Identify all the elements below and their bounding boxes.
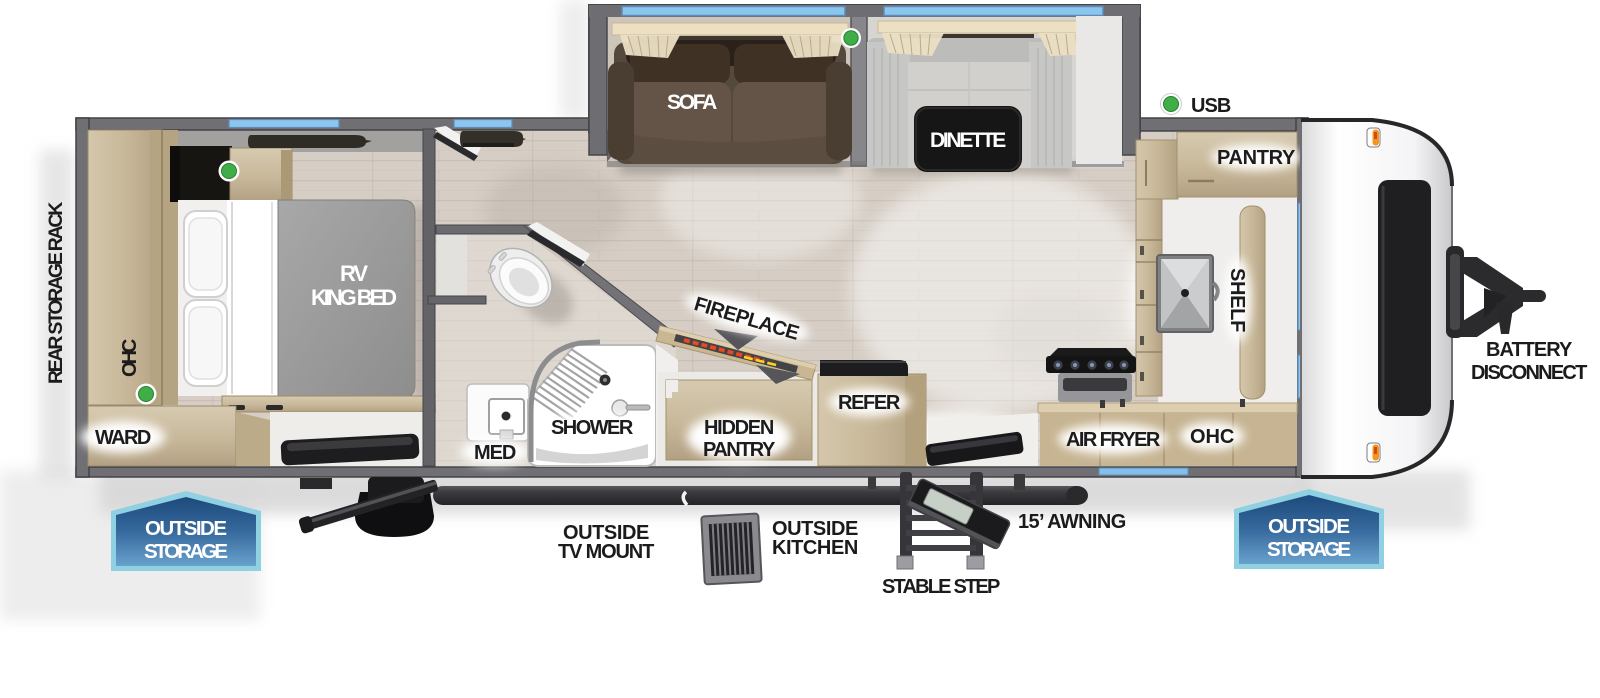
svg-text:RV: RV: [340, 261, 368, 286]
svg-text:PANTRY: PANTRY: [1217, 147, 1296, 169]
svg-text:OUTSIDE: OUTSIDE: [1268, 515, 1350, 538]
svg-text:REFER: REFER: [838, 392, 901, 414]
svg-text:SHELF: SHELF: [1226, 268, 1248, 332]
svg-text:PANTRY: PANTRY: [703, 439, 776, 461]
svg-text:DINETTE: DINETTE: [930, 129, 1006, 152]
svg-text:BATTERY: BATTERY: [1486, 339, 1573, 361]
svg-text:HIDDEN: HIDDEN: [704, 417, 774, 439]
svg-text:KITCHEN: KITCHEN: [772, 537, 858, 559]
svg-text:REAR STORAGE RACK: REAR STORAGE RACK: [45, 202, 67, 384]
svg-text:DISCONNECT: DISCONNECT: [1471, 362, 1587, 384]
svg-text:OUTSIDE: OUTSIDE: [145, 517, 227, 540]
svg-text:USB: USB: [1191, 95, 1231, 117]
svg-text:OHC: OHC: [119, 339, 141, 377]
svg-text:TV MOUNT: TV MOUNT: [558, 541, 654, 563]
svg-text:SHOWER: SHOWER: [551, 417, 634, 439]
svg-text:WARD: WARD: [95, 427, 151, 449]
svg-text:MED: MED: [474, 442, 516, 464]
svg-text:SOFA: SOFA: [667, 91, 717, 114]
svg-text:STORAGE: STORAGE: [1267, 538, 1351, 561]
svg-text:KING BED: KING BED: [311, 285, 397, 310]
svg-text:15’ AWNING: 15’ AWNING: [1018, 511, 1126, 533]
svg-text:OHC: OHC: [1190, 426, 1234, 448]
svg-text:AIR FRYER: AIR FRYER: [1066, 429, 1161, 451]
svg-text:STABLE STEP: STABLE STEP: [882, 576, 1000, 598]
svg-text:STORAGE: STORAGE: [144, 540, 228, 563]
